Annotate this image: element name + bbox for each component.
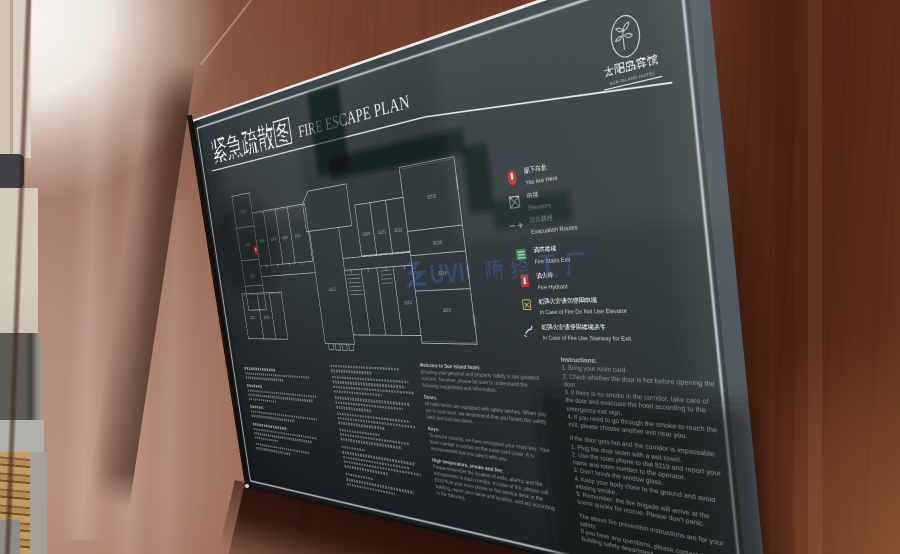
svg-text:In Case of Fire Do Not Use Ele: In Case of Fire Do Not Use Elevator xyxy=(539,307,629,316)
svg-text:3312: 3312 xyxy=(250,315,256,320)
svg-text:3203: 3203 xyxy=(427,192,437,200)
svg-text:3212: 3212 xyxy=(403,299,412,306)
svg-text:In Case of Fire Use Stairway f: In Case of Fire Use Stairway for Exit xyxy=(542,334,631,342)
svg-text:Fire Hydrant: Fire Hydrant xyxy=(537,283,568,292)
svg-text:3308: 3308 xyxy=(294,233,301,239)
svg-text:3313: 3313 xyxy=(263,315,269,320)
svg-text:3218: 3218 xyxy=(432,239,442,247)
svg-text:3215: 3215 xyxy=(328,286,336,292)
svg-text:3307: 3307 xyxy=(282,235,289,241)
svg-text:3209: 3209 xyxy=(362,230,371,237)
svg-text:UVI: UVI xyxy=(428,258,467,290)
svg-text:3211: 3211 xyxy=(394,226,403,233)
svg-text:3210: 3210 xyxy=(377,228,386,235)
svg-text:3207: 3207 xyxy=(442,307,452,314)
